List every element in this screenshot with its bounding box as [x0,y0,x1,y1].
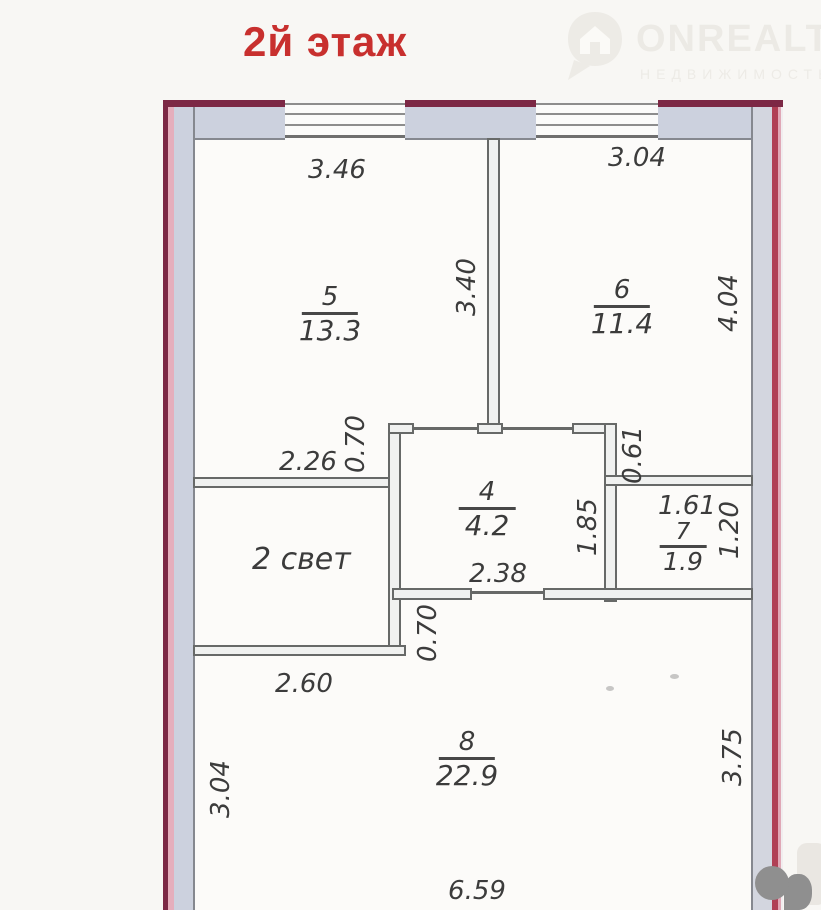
inner-wall-rooms5-6 [487,138,500,434]
onrealt-subtitle: НЕДВИЖИМОСТЬ [640,66,821,82]
inner-wall-room4-bottom-b [543,588,753,600]
dim-room6-width: 3.04 [608,143,666,173]
inner-wall-room4-left [388,424,401,656]
room8-label: 8 22.9 [436,728,498,792]
dim-room8-width: 6.59 [448,876,506,906]
inner-wall-room4-right [604,423,617,602]
window-room6-icon [536,100,658,140]
room8-area: 22.9 [436,760,498,792]
dim-room5-width: 3.46 [308,155,366,185]
dim-room5-bottom: 2.26 [279,447,337,477]
dim-room8-right-height: 3.75 [718,728,748,786]
outer-wall-right [751,107,783,910]
dim-room4-width: 2.38 [469,559,527,589]
dim-lightwell-width: 2.60 [275,669,333,699]
room5-number: 5 [302,283,359,315]
room6-number: 6 [594,276,651,308]
room5-area: 13.3 [299,315,361,347]
inner-wall-room4-bottom-a [392,588,472,600]
scan-artifact [670,674,679,679]
light-well-label: 2 свет [252,542,351,577]
page-title: 2й этаж [243,18,407,66]
room4-number: 4 [459,478,516,510]
inner-wall-room4-top-a [388,423,414,434]
outer-wall-top [163,100,783,140]
dim-room8-left-height: 3.04 [206,760,236,818]
inner-wall-room4-top-b [477,423,503,434]
scan-artifact [606,686,614,691]
room4-label: 4 4.2 [459,478,516,542]
room6-area: 11.4 [591,308,653,340]
room4-area: 4.2 [459,510,516,542]
outer-wall-left [163,107,195,910]
dim-room5-height: 3.40 [452,258,482,316]
room8-number: 8 [439,728,496,760]
dim-room7-height: 1.20 [715,501,745,559]
dim-room6-height: 4.04 [714,274,744,332]
dim-step-lower: 0.70 [413,604,443,662]
onrealt-brand: ONREALT [636,18,821,61]
inner-wall-room5-bottom [193,477,394,488]
room5-label: 5 13.3 [299,283,361,347]
room7-area: 1.9 [660,548,707,577]
window-room5-icon [285,100,405,140]
onrealt-pin-icon [562,8,628,84]
dim-room4-height: 1.85 [573,498,603,556]
inner-wall-lightwell-bottom [193,645,406,656]
floor-plan-photo: 2й этаж ONREALT НЕДВИЖИМОСТЬ 5 13.3 6 11… [0,0,821,910]
onrealt-logo: ONREALT НЕДВИЖИМОСТЬ [562,8,818,96]
dim-room7-width: 1.61 [658,491,716,521]
room6-label: 6 11.4 [591,276,653,340]
dim-passage-height: 0.61 [618,426,648,484]
dim-step-upper: 0.70 [341,415,371,473]
corner-watermark-circle [755,866,789,900]
room7-number: 7 [660,520,707,548]
room7-label: 7 1.9 [660,520,707,577]
